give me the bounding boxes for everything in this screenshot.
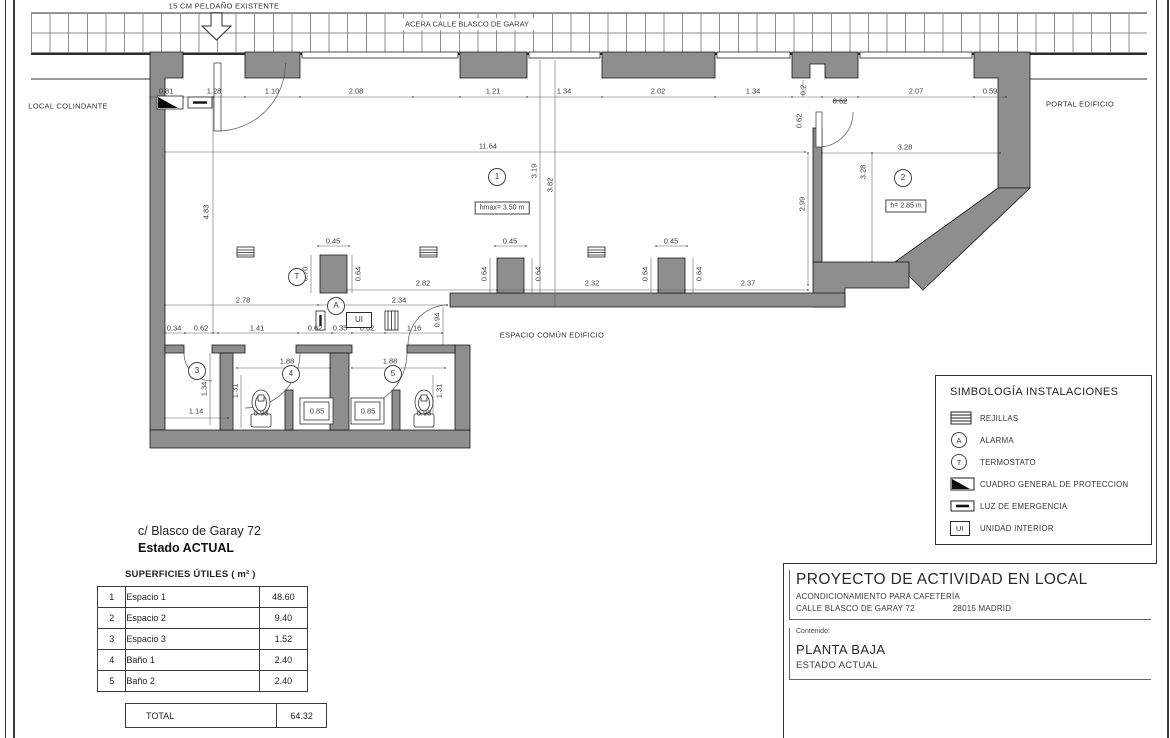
- legend-label: CUADRO GENERAL DE PROTECCION: [980, 480, 1128, 489]
- alarma-icon: A: [951, 432, 967, 448]
- table-row: 4 Baño 1 2.40: [98, 650, 308, 671]
- row-value: 2.40: [259, 671, 307, 692]
- rejilla-icon: [950, 410, 980, 426]
- surfaces-title: SUPERFICIES ÚTILES ( m² ): [125, 569, 327, 580]
- row-num: 5: [98, 671, 126, 692]
- row-num: 3: [98, 629, 126, 650]
- row-value: 9.40: [259, 608, 307, 629]
- total-value: 64.32: [277, 704, 327, 728]
- title-block: PROYECTO DE ACTIVIDAD EN LOCAL ACONDICIO…: [783, 563, 1157, 738]
- surfaces-table: 1 Espacio 1 48.60 2 Espacio 2 9.40 3 Esp…: [97, 586, 308, 692]
- legend-label: LUZ DE EMERGENCIA: [980, 502, 1067, 511]
- table-row: 2 Espacio 2 9.40: [98, 608, 308, 629]
- row-name: Baño 2: [126, 671, 259, 692]
- total-row: TOTAL 64.32: [125, 703, 327, 728]
- legend-item-luz-emergencia: LUZ DE EMERGENCIA: [950, 495, 1151, 517]
- legend-item-unidad-interior: UI UNIDAD INTERIOR: [950, 517, 1151, 539]
- legend-item-termostato: T TERMOSTATO: [950, 451, 1151, 473]
- legend-item-alarma: A ALARMA: [950, 429, 1151, 451]
- table-row: 5 Baño 2 2.40: [98, 671, 308, 692]
- address-line: c/ Blasco de Garay 72: [138, 524, 327, 538]
- row-num: 2: [98, 608, 126, 629]
- project-title: PROYECTO DE ACTIVIDAD EN LOCAL: [796, 571, 1151, 589]
- project-address: CALLE BLASCO DE GARAY 7228015 MADRID: [796, 604, 1151, 613]
- project-city: 28015 MADRID: [953, 604, 1011, 613]
- state-line: Estado ACTUAL: [138, 541, 327, 555]
- row-name: Espacio 1: [126, 587, 259, 608]
- legend-label: UNIDAD INTERIOR: [980, 524, 1054, 533]
- table-row: 1 Espacio 1 48.60: [98, 587, 308, 608]
- step-arrow-icon: [202, 13, 231, 40]
- floor-plan-sheet: 15 CM PELDAÑO EXISTENTEACERA CALLE BLASC…: [0, 0, 1170, 738]
- luz-emergencia-icon: [950, 500, 980, 513]
- row-num: 1: [98, 587, 126, 608]
- surfaces-block: c/ Blasco de Garay 72 Estado ACTUAL SUPE…: [97, 524, 327, 728]
- legend-label: REJILLAS: [980, 414, 1018, 423]
- cuadro-general-icon: [950, 477, 980, 492]
- row-name: Baño 1: [126, 650, 259, 671]
- project-street: CALLE BLASCO DE GARAY 72: [796, 604, 915, 613]
- table-row: 3 Espacio 3 1.52: [98, 629, 308, 650]
- legend-title: SIMBOLOGÍA INSTALACIONES: [950, 386, 1151, 398]
- row-value: 2.40: [259, 650, 307, 671]
- row-value: 48.60: [259, 587, 307, 608]
- row-name: Espacio 3: [126, 629, 259, 650]
- doors: [184, 63, 853, 408]
- legend-box: SIMBOLOGÍA INSTALACIONES REJILLAS A ALAR…: [935, 375, 1152, 545]
- contents-label: Contenido:: [796, 628, 1151, 635]
- project-subtitle: ACONDICIONAMIENTO PARA CAFETERÍA: [796, 592, 1151, 601]
- legend-item-rejillas: REJILLAS: [950, 407, 1151, 429]
- legend-item-cuadro-general: CUADRO GENERAL DE PROTECCION: [950, 473, 1151, 495]
- content-line-2: ESTADO ACTUAL: [796, 660, 1151, 671]
- content-line-1: PLANTA BAJA: [796, 642, 1151, 657]
- legend-label: ALARMA: [980, 436, 1014, 445]
- row-value: 1.52: [259, 629, 307, 650]
- total-label: TOTAL: [126, 704, 277, 728]
- row-num: 4: [98, 650, 126, 671]
- row-name: Espacio 2: [126, 608, 259, 629]
- dimension-lines: [150, 60, 1006, 428]
- legend-label: TERMOSTATO: [980, 458, 1036, 467]
- termostato-icon: T: [951, 454, 967, 470]
- unidad-interior-icon: UI: [950, 521, 970, 536]
